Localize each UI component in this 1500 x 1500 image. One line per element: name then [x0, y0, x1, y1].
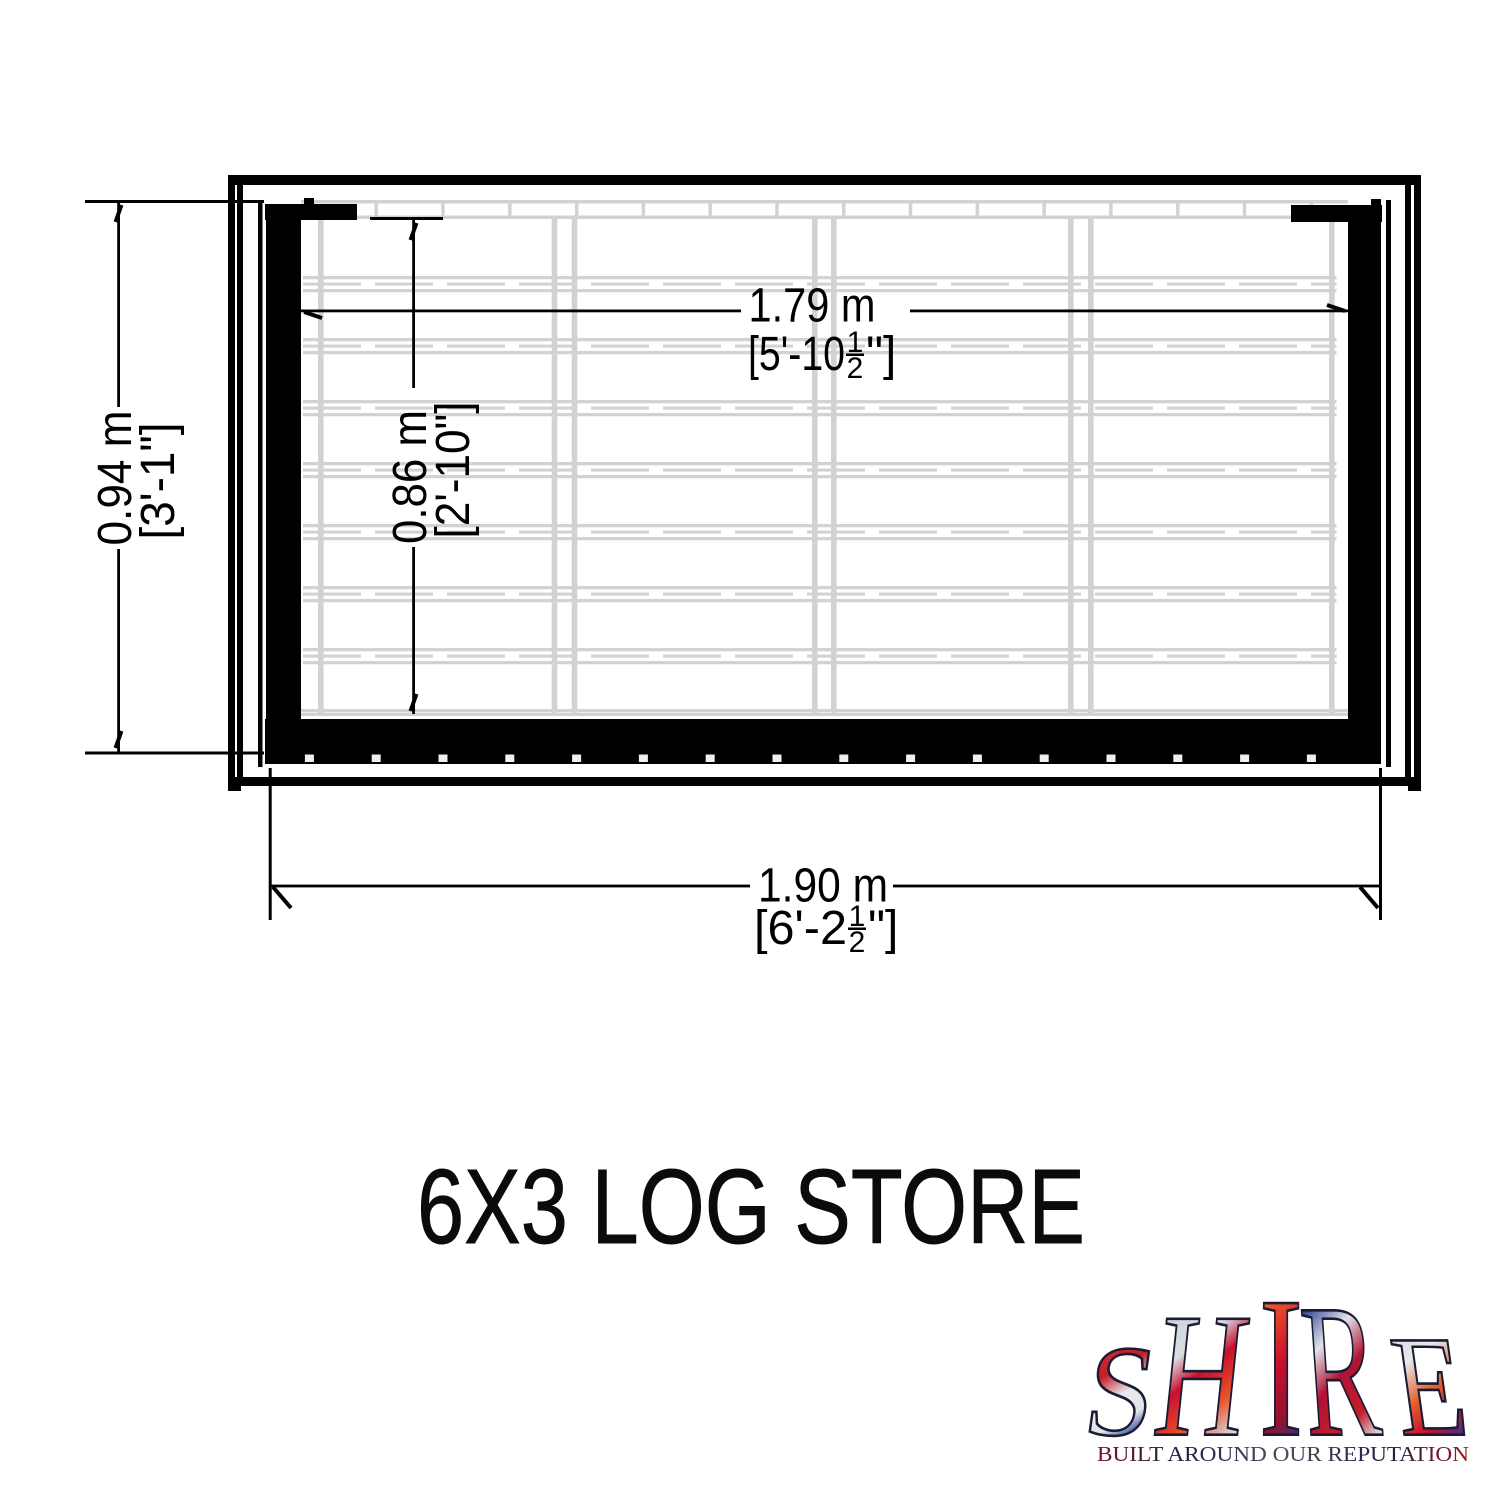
svg-text:"]: "]	[868, 902, 898, 955]
svg-text:[3'-1"]: [3'-1"]	[132, 423, 185, 540]
svg-text:6X3 LOG STORE: 6X3 LOG STORE	[417, 1148, 1085, 1266]
svg-text:[2'-10"]: [2'-10"]	[427, 402, 480, 539]
svg-text:"]: "]	[866, 328, 896, 381]
svg-text:[6'-2: [6'-2	[754, 902, 847, 955]
svg-text:BUILT AROUND OUR REPUTATION: BUILT AROUND OUR REPUTATION	[1097, 1442, 1469, 1466]
svg-text:2: 2	[849, 926, 866, 959]
svg-text:[5'-10: [5'-10	[748, 328, 845, 381]
svg-text:1.79 m: 1.79 m	[749, 280, 876, 333]
svg-text:2: 2	[847, 352, 864, 385]
